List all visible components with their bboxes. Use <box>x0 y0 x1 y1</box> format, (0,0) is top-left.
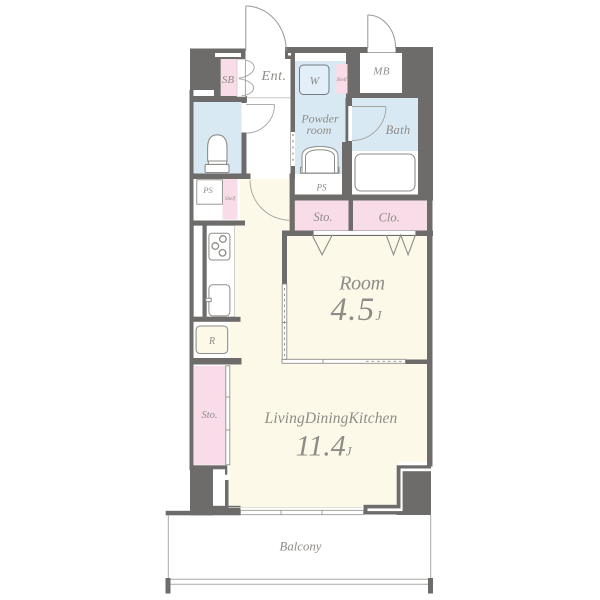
svg-text:Sto.: Sto. <box>313 210 332 224</box>
svg-text:LivingDiningKitchen: LivingDiningKitchen <box>264 410 398 427</box>
svg-text:Clo.: Clo. <box>379 211 400 225</box>
svg-text:Balcony: Balcony <box>280 540 322 554</box>
svg-text:Bath: Bath <box>386 123 411 137</box>
svg-text:SB: SB <box>222 74 235 86</box>
svg-text:PS: PS <box>202 185 213 195</box>
svg-text:PS: PS <box>316 183 327 193</box>
svg-text:Shelf: Shelf <box>337 78 348 83</box>
svg-text:W: W <box>310 76 321 88</box>
svg-text:4.5J: 4.5J <box>330 292 382 328</box>
svg-text:Sto.: Sto. <box>201 410 217 421</box>
svg-text:R: R <box>208 336 215 347</box>
svg-text:Shelf: Shelf <box>225 197 236 202</box>
svg-text:room: room <box>307 123 332 137</box>
svg-text:MB: MB <box>372 66 389 78</box>
svg-text:11.4J: 11.4J <box>295 430 352 463</box>
svg-text:Ent.: Ent. <box>261 69 287 84</box>
